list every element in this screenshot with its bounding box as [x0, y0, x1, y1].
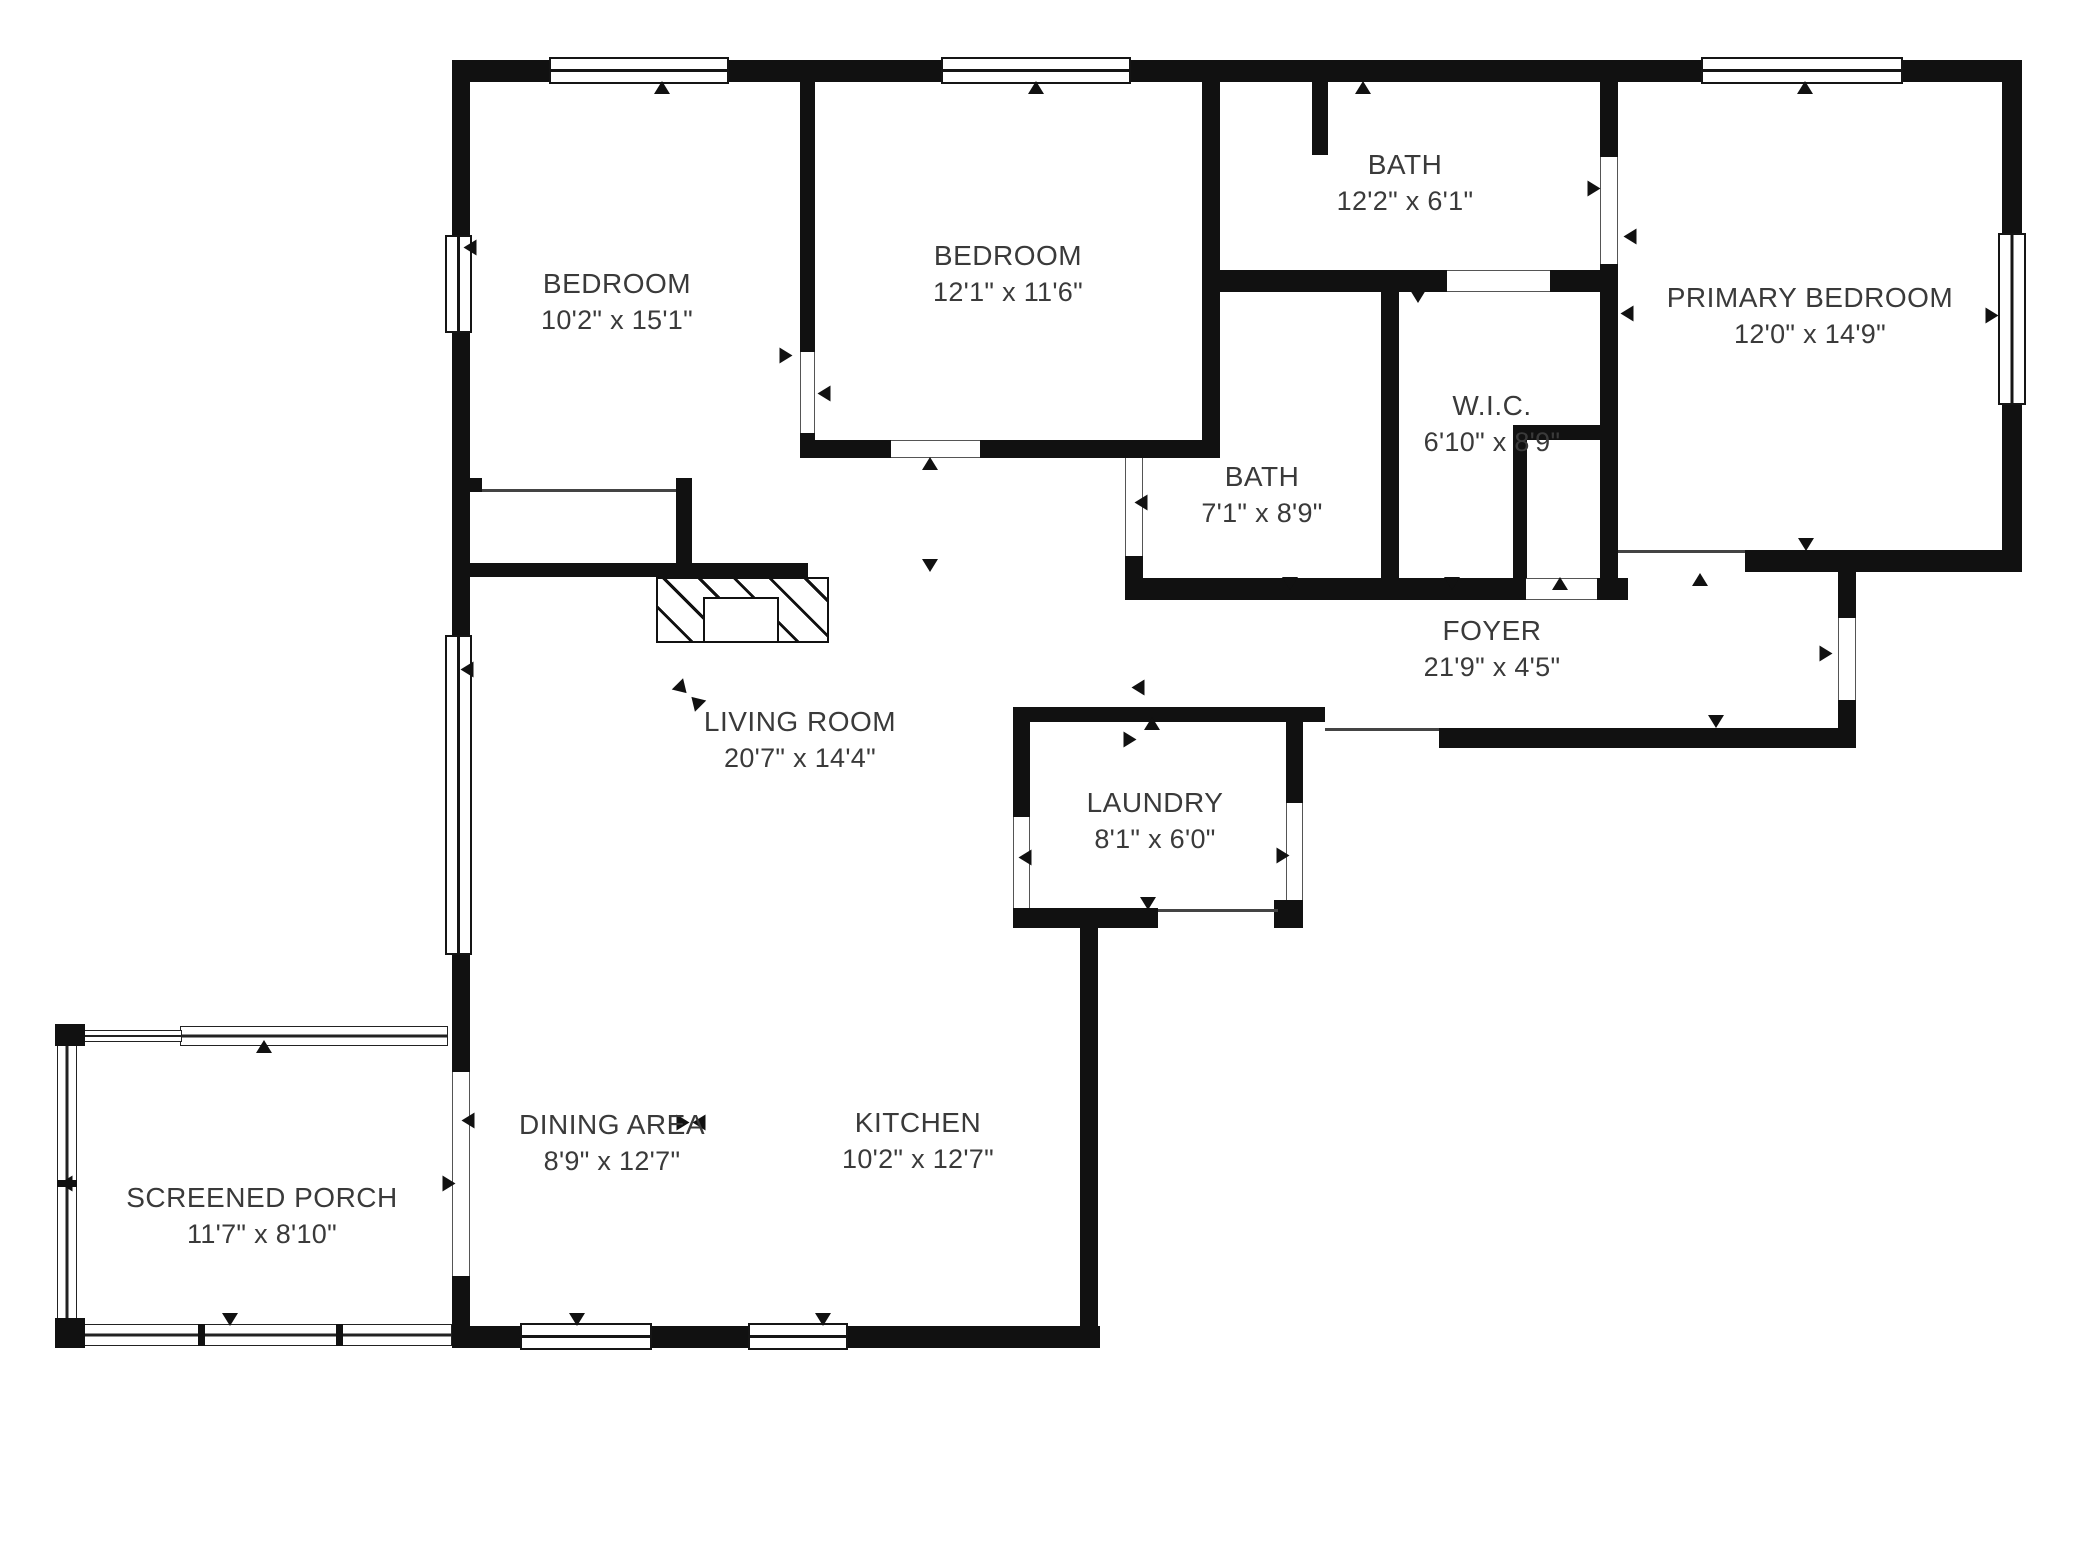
window	[1701, 57, 1903, 84]
room-name-bedroom-1: BEDROOM	[541, 265, 693, 302]
wall-segment	[1013, 722, 1030, 817]
wall-segment	[726, 60, 946, 82]
door-direction-marker	[1019, 850, 1032, 866]
door-direction-marker	[1355, 81, 1371, 94]
door-direction-marker	[222, 1313, 238, 1326]
door-opening	[1447, 270, 1550, 292]
room-dimensions-bedroom-1: 10'2" x 15'1"	[541, 302, 693, 339]
door-direction-marker	[1621, 306, 1634, 322]
porch-screen-rail	[180, 1026, 448, 1046]
fireplace-firebox	[703, 597, 779, 643]
door-direction-marker	[1410, 290, 1426, 303]
door-direction-marker	[1692, 573, 1708, 586]
wall-segment	[1600, 82, 1618, 157]
threshold-line	[1158, 909, 1278, 912]
room-dimensions-kitchen: 10'2" x 12'7"	[842, 1141, 994, 1178]
wall-segment	[466, 478, 482, 492]
room-dimensions-bath-hall: 7'1" x 8'9"	[1201, 495, 1322, 532]
room-label-kitchen: KITCHEN10'2" x 12'7"	[842, 1104, 994, 1178]
room-name-wic: W.I.C.	[1424, 387, 1561, 424]
room-dimensions-dining-area: 8'9" x 12'7"	[519, 1143, 705, 1180]
window	[445, 635, 472, 955]
room-name-screened-porch: SCREENED PORCH	[126, 1179, 397, 1216]
door-direction-marker	[60, 1176, 73, 1192]
porch-post	[55, 1318, 85, 1348]
room-label-bath-main: BATH12'2" x 6'1"	[1337, 146, 1474, 220]
room-label-laundry: LAUNDRY8'1" x 6'0"	[1087, 784, 1224, 858]
room-label-foyer: FOYER21'9" x 4'5"	[1424, 612, 1561, 686]
room-dimensions-wic: 6'10" x 8'9"	[1424, 424, 1561, 461]
porch-screen-rail	[81, 1324, 452, 1346]
wall-segment	[1286, 722, 1303, 803]
room-name-dining-area: DINING AREA	[519, 1106, 705, 1143]
room-label-bath-hall: BATH7'1" x 8'9"	[1201, 458, 1322, 532]
room-name-kitchen: KITCHEN	[842, 1104, 994, 1141]
door-opening	[800, 352, 815, 433]
window	[520, 1323, 652, 1350]
room-label-living-room: LIVING ROOM20'7" x 14'4"	[704, 703, 896, 777]
door-direction-marker	[1708, 715, 1724, 728]
wall-segment	[452, 1326, 526, 1348]
window	[941, 57, 1131, 84]
wall-segment	[1013, 707, 1325, 722]
wall-segment	[800, 82, 815, 352]
door-direction-marker	[1798, 538, 1814, 551]
door-direction-marker	[462, 1113, 475, 1129]
room-name-bedroom-2: BEDROOM	[933, 237, 1083, 274]
door-direction-marker	[569, 1313, 585, 1326]
room-dimensions-screened-porch: 11'7" x 8'10"	[126, 1216, 397, 1253]
wall-segment	[1133, 578, 1526, 600]
door-direction-marker	[1282, 577, 1298, 590]
porch-rail-tick	[198, 1324, 205, 1346]
wall-segment	[800, 440, 891, 458]
room-dimensions-laundry: 8'1" x 6'0"	[1087, 821, 1224, 858]
door-direction-marker	[672, 678, 693, 699]
door-direction-marker	[1132, 680, 1145, 696]
room-dimensions-bedroom-2: 12'1" x 11'6"	[933, 274, 1083, 311]
door-direction-marker	[1140, 897, 1156, 910]
door-direction-marker	[1028, 81, 1044, 94]
door-direction-marker	[922, 559, 938, 572]
door-direction-marker	[443, 1176, 456, 1192]
door-opening	[1838, 618, 1856, 700]
wall-segment	[1274, 900, 1303, 928]
window	[549, 57, 729, 84]
door-direction-marker	[1624, 229, 1637, 245]
door-opening	[891, 440, 980, 458]
porch-post	[55, 1024, 85, 1046]
room-label-bedroom-2: BEDROOM12'1" x 11'6"	[933, 237, 1083, 311]
wall-segment	[2002, 60, 2022, 237]
door-direction-marker	[815, 1313, 831, 1326]
door-direction-marker	[922, 457, 938, 470]
room-dimensions-foyer: 21'9" x 4'5"	[1424, 649, 1561, 686]
room-name-primary-bedroom: PRIMARY BEDROOM	[1667, 279, 1954, 316]
wall-segment	[1080, 908, 1098, 1348]
room-name-laundry: LAUNDRY	[1087, 784, 1224, 821]
porch-screen-rail	[83, 1030, 182, 1042]
door-direction-marker	[1797, 81, 1813, 94]
door-direction-marker	[1986, 308, 1999, 324]
wall-segment	[452, 60, 470, 240]
room-label-dining-area: DINING AREA8'9" x 12'7"	[519, 1106, 705, 1180]
wall-segment	[2002, 403, 2022, 572]
door-direction-marker	[1124, 732, 1137, 748]
room-dimensions-living-room: 20'7" x 14'4"	[704, 740, 896, 777]
door-direction-marker	[461, 662, 474, 678]
threshold-line	[1618, 550, 1745, 553]
room-name-living-room: LIVING ROOM	[704, 703, 896, 740]
door-direction-marker	[256, 1040, 272, 1053]
door-direction-marker	[818, 386, 831, 402]
door-direction-marker	[1552, 577, 1568, 590]
wall-segment	[452, 563, 808, 577]
wall-segment	[980, 440, 1218, 458]
wall-segment	[1745, 550, 2022, 572]
room-dimensions-primary-bedroom: 12'0" x 14'9"	[1667, 316, 1954, 353]
room-label-bedroom-1: BEDROOM10'2" x 15'1"	[541, 265, 693, 339]
wall-segment	[1381, 292, 1399, 578]
door-opening	[452, 1072, 470, 1276]
room-name-bath-hall: BATH	[1201, 458, 1322, 495]
door-direction-marker	[654, 81, 670, 94]
porch-rail-tick	[336, 1324, 343, 1346]
window	[748, 1323, 848, 1350]
wall-segment	[452, 952, 470, 1074]
room-label-screened-porch: SCREENED PORCH11'7" x 8'10"	[126, 1179, 397, 1253]
wall-segment	[1128, 60, 1706, 82]
room-name-foyer: FOYER	[1424, 612, 1561, 649]
threshold-line	[1325, 728, 1439, 731]
wall-segment	[846, 1326, 1100, 1348]
room-name-bath-main: BATH	[1337, 146, 1474, 183]
door-opening	[1600, 157, 1618, 264]
room-label-wic: W.I.C.6'10" x 8'9"	[1424, 387, 1561, 461]
wall-segment	[1597, 578, 1628, 600]
door-direction-marker	[1588, 181, 1601, 197]
wall-segment	[1439, 728, 1856, 748]
floor-plan: BEDROOM10'2" x 15'1"BEDROOM12'1" x 11'6"…	[0, 0, 2080, 1560]
wall-segment	[676, 478, 692, 577]
door-direction-marker	[464, 240, 477, 256]
wall-segment	[1838, 572, 1856, 618]
wall-segment	[1312, 82, 1328, 155]
threshold-line	[482, 489, 676, 492]
door-direction-marker	[1277, 848, 1290, 864]
door-direction-marker	[1820, 646, 1833, 662]
door-direction-marker	[1444, 577, 1460, 590]
door-direction-marker	[1135, 495, 1148, 511]
door-direction-marker	[1144, 717, 1160, 730]
wall-segment	[650, 1326, 754, 1348]
door-direction-marker	[780, 348, 793, 364]
room-dimensions-bath-main: 12'2" x 6'1"	[1337, 183, 1474, 220]
window	[1998, 233, 2026, 405]
wall-segment	[1202, 270, 1447, 292]
room-label-primary-bedroom: PRIMARY BEDROOM12'0" x 14'9"	[1667, 279, 1954, 353]
